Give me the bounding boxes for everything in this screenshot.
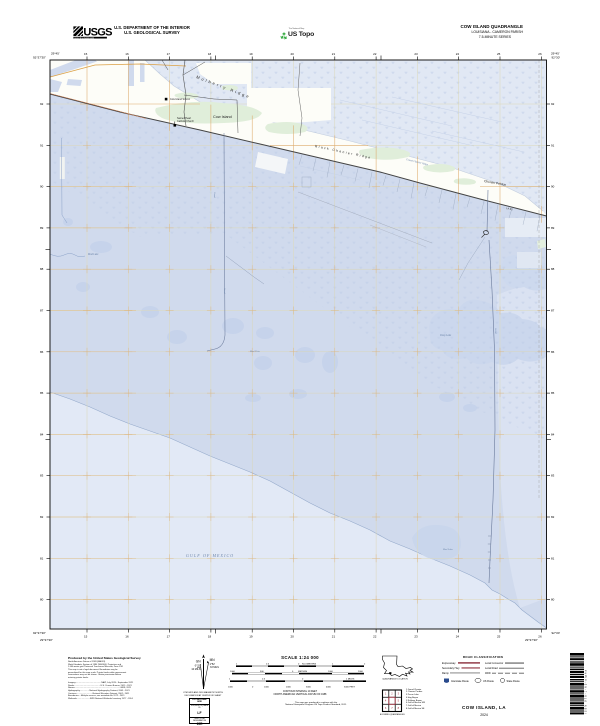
svg-text:1: 1 (229, 679, 231, 681)
svg-text:80: 80 (551, 598, 555, 602)
svg-text:21: 21 (332, 635, 336, 639)
svg-text:5000 FEET: 5000 FEET (344, 686, 356, 688)
svg-text:500: 500 (260, 671, 264, 673)
svg-text:0.5: 0.5 (262, 679, 266, 681)
svg-text:Deep Lake: Deep Lake (439, 334, 452, 337)
svg-text:4WD: 4WD (485, 672, 491, 675)
svg-text:89: 89 (40, 226, 44, 230)
svg-text:24: 24 (456, 635, 460, 639)
svg-text:83: 83 (40, 474, 44, 478)
svg-text:Canal: Canal (223, 288, 226, 294)
svg-text:20: 20 (291, 635, 295, 639)
svg-text:1 MILES: 1 MILES (346, 679, 355, 681)
svg-text:1000: 1000 (230, 671, 236, 673)
svg-text:83: 83 (551, 474, 555, 478)
svg-text:Local Road: Local Road (485, 667, 498, 670)
svg-text:29°37'30": 29°37'30" (40, 638, 53, 642)
svg-text:2: 2 (364, 664, 366, 666)
svg-text:ADJOINING QUADRANGLES: ADJOINING QUADRANGLES (380, 713, 405, 716)
svg-text:Mud Flats: Mud Flats (249, 350, 260, 353)
svg-text:0: 0 (298, 664, 300, 666)
svg-text:GULF OF MEXICO: GULF OF MEXICO (186, 553, 234, 558)
svg-text:Secondary Hwy: Secondary Hwy (442, 667, 460, 670)
svg-text:15: 15 (84, 52, 88, 56)
svg-text:92°30': 92°30' (552, 631, 561, 635)
svg-text:18: 18 (208, 635, 212, 639)
svg-text:1000: 1000 (264, 686, 270, 688)
svg-text:0: 0 (292, 671, 294, 673)
svg-text:89: 89 (551, 226, 555, 230)
svg-text:US Route: US Route (483, 680, 494, 683)
svg-text:Cow Island: Cow Island (213, 115, 232, 119)
svg-text:2000: 2000 (286, 686, 292, 688)
svg-text:86: 86 (40, 350, 44, 354)
svg-text:Cow Island School: Cow Island School (170, 98, 190, 101)
svg-text:Ramp: Ramp (442, 672, 449, 675)
svg-text:16: 16 (125, 635, 129, 639)
svg-text:0: 0 (252, 686, 254, 688)
svg-text:15: 15 (84, 635, 88, 639)
svg-text:80: 80 (40, 598, 44, 602)
svg-text:33 MILS: 33 MILS (210, 666, 219, 669)
svg-text:17: 17 (167, 52, 171, 56)
svg-text:1000: 1000 (228, 686, 234, 688)
svg-text:3000: 3000 (306, 686, 312, 688)
svg-text:19: 19 (249, 52, 253, 56)
svg-text:92°37'30": 92°37'30" (33, 631, 46, 635)
svg-text:23: 23 (414, 52, 418, 56)
svg-text:Local Connector: Local Connector (485, 662, 503, 665)
svg-text:20: 20 (291, 52, 295, 56)
svg-text:22: 22 (373, 52, 377, 56)
svg-text:88: 88 (551, 267, 555, 271)
svg-text:Canal: Canal (213, 192, 216, 198)
svg-text:22: 22 (373, 635, 377, 639)
svg-text:91: 91 (40, 143, 44, 147)
svg-text:25: 25 (497, 52, 501, 56)
svg-text:87: 87 (40, 309, 44, 313)
svg-text:KILOMETERS: KILOMETERS (302, 664, 317, 666)
svg-text:92°30': 92°30' (552, 56, 561, 60)
svg-text:2000: 2000 (358, 671, 364, 673)
svg-text:90: 90 (551, 185, 555, 189)
svg-text:10 MILS: 10 MILS (191, 668, 200, 671)
svg-text:ISBN 978-1-63-alpha: ISBN 978-1-63-alpha (585, 669, 588, 714)
svg-text:0.5: 0.5 (266, 664, 270, 666)
svg-text:91: 91 (551, 143, 555, 147)
svg-text:85: 85 (40, 391, 44, 395)
svg-text:QUADRANGLE LOCATION: QUADRANGLE LOCATION (382, 677, 408, 680)
svg-text:92°37'30": 92°37'30" (33, 56, 46, 60)
svg-text:1: 1 (332, 664, 334, 666)
svg-text:4000: 4000 (326, 686, 332, 688)
svg-text:29°37'30": 29°37'30" (525, 638, 538, 642)
svg-text:24: 24 (456, 52, 460, 56)
svg-text:86: 86 (551, 350, 555, 354)
svg-text:17: 17 (167, 635, 171, 639)
svg-text:26: 26 (538, 635, 542, 639)
svg-text:State Route: State Route (507, 680, 521, 683)
svg-text:29°45': 29°45' (51, 52, 60, 56)
svg-text:84: 84 (40, 432, 44, 436)
svg-text:METERS: METERS (298, 671, 308, 673)
svg-text:GN: GN (196, 660, 201, 664)
svg-text:92: 92 (40, 102, 44, 106)
svg-text:1: 1 (236, 664, 238, 666)
svg-text:88: 88 (40, 267, 44, 271)
svg-text:92: 92 (551, 102, 555, 106)
svg-text:85: 85 (551, 391, 555, 395)
svg-text:Expressway: Expressway (442, 662, 456, 665)
svg-text:16: 16 (125, 52, 129, 56)
svg-text:Canal: Canal (494, 328, 497, 334)
svg-text:90: 90 (40, 185, 44, 189)
svg-text:Catholic Church: Catholic Church (177, 120, 195, 123)
svg-text:18: 18 (208, 52, 212, 56)
svg-text:87: 87 (551, 309, 555, 313)
svg-text:1000: 1000 (328, 671, 334, 673)
svg-text:26: 26 (538, 52, 542, 56)
svg-text:81: 81 (40, 556, 44, 560)
svg-text:25: 25 (497, 635, 501, 639)
svg-text:MN: MN (210, 658, 216, 662)
svg-text:Interstate Route: Interstate Route (451, 680, 469, 683)
svg-text:82: 82 (551, 515, 555, 519)
svg-text:Mud Lake: Mud Lake (87, 253, 99, 256)
svg-text:23: 23 (414, 635, 418, 639)
svg-text:19: 19 (249, 635, 253, 639)
svg-text:82: 82 (40, 515, 44, 519)
svg-text:Mud Lake: Mud Lake (442, 548, 453, 551)
svg-text:0: 0 (302, 679, 304, 681)
svg-text:84: 84 (551, 432, 555, 436)
svg-text:81: 81 (551, 556, 555, 560)
svg-text:21: 21 (332, 52, 336, 56)
